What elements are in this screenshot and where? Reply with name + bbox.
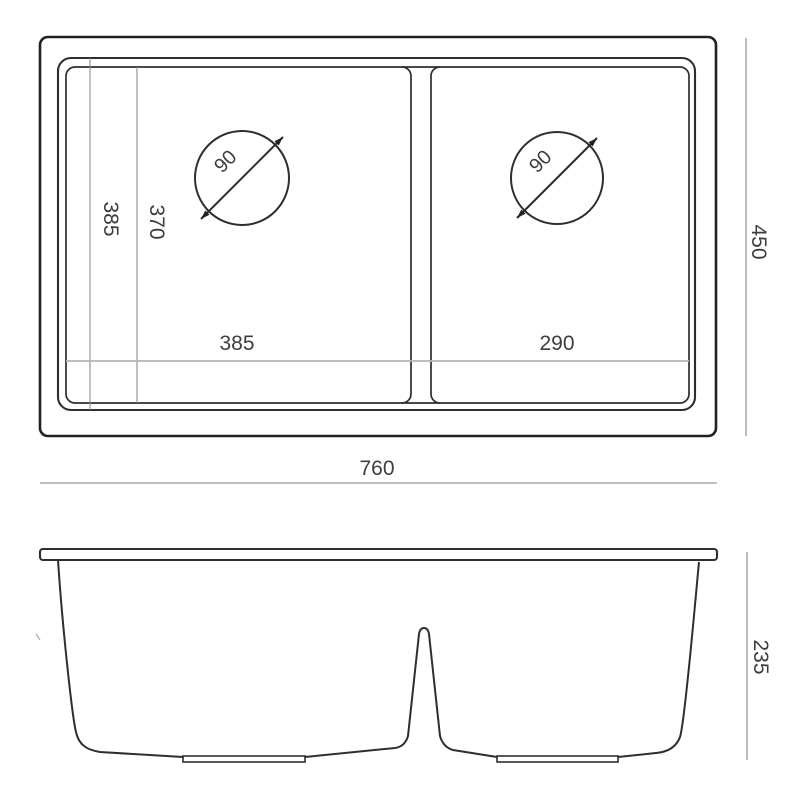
- front-body-outline: [58, 560, 699, 757]
- label-left-bowl-width: 385: [219, 332, 254, 355]
- front-view: [36, 549, 717, 762]
- overall-depth-dimension: 450: [746, 38, 770, 436]
- foot-pad-right: [497, 756, 618, 762]
- label-left-bowl-length-outer: 385: [99, 201, 122, 236]
- overall-width-dimension: 760: [40, 457, 717, 483]
- front-height-dimension: 235: [747, 552, 772, 760]
- label-overall-width: 760: [359, 457, 394, 480]
- sink-technical-drawing: 90 90 385 370 385 290 760 450 235: [0, 0, 800, 794]
- foot-pad-left: [183, 756, 305, 762]
- front-rim-bar: [40, 549, 717, 560]
- label-right-bowl-width: 290: [539, 332, 574, 355]
- label-front-height: 235: [749, 639, 772, 674]
- stray-tick-mark: [36, 634, 40, 640]
- technical-drawing-canvas: 90 90 385 370 385 290 760 450 235: [0, 0, 800, 794]
- top-view: 90 90 385 370 385 290: [40, 37, 716, 436]
- label-overall-depth: 450: [747, 224, 770, 259]
- label-left-bowl-length-inner: 370: [145, 204, 168, 239]
